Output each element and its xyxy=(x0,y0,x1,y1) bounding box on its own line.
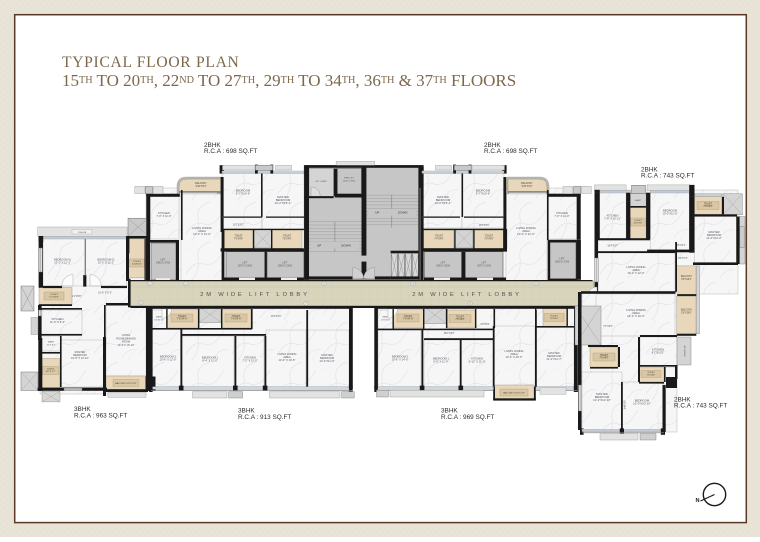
svg-text:4'-6X10'1": 4'-6X10'1" xyxy=(132,264,142,266)
svg-text:TOILET: TOILET xyxy=(404,316,413,318)
svg-text:16'-2" X 10'-0": 16'-2" X 10'-0" xyxy=(627,314,645,318)
svg-text:10'4"X3'7": 10'4"X3'7" xyxy=(607,245,618,248)
svg-text:10'-0" X 21'-0": 10'-0" X 21'-0" xyxy=(517,232,535,236)
svg-text:R.C.A : 698 SQ.FT: R.C.A : 698 SQ.FT xyxy=(204,148,257,155)
svg-text:10'-2"X12'-2": 10'-2"X12'-2" xyxy=(706,236,722,240)
svg-text:11'0"X3'3": 11'0"X3'3" xyxy=(233,224,244,227)
svg-text:7'-6"X4'-6": 7'-6"X4'-6" xyxy=(177,319,188,321)
svg-text:BALCONY: BALCONY xyxy=(681,309,692,312)
svg-text:4'6" X 7'7": 4'6" X 7'7" xyxy=(46,371,56,373)
svg-text:9'10"X3'3": 9'10"X3'3" xyxy=(196,185,207,188)
svg-text:4'6 X 8'4": 4'6 X 8'4" xyxy=(47,345,56,347)
svg-text:2M WIDE LIFT LOBBY: 2M WIDE LIFT LOBBY xyxy=(200,292,310,298)
svg-text:4'3"X3'9": 4'3"X3'9" xyxy=(480,324,489,326)
svg-text:DOWN: DOWN xyxy=(398,211,408,215)
svg-text:TOILET: TOILET xyxy=(133,261,141,263)
svg-text:11'-5" X 8'-4": 11'-5" X 8'-4" xyxy=(50,320,65,324)
svg-text:16'-2" X 12'-0": 16'-2" X 12'-0" xyxy=(628,271,645,275)
svg-text:5'6"X10'2": 5'6"X10'2" xyxy=(681,279,692,281)
svg-text:10'-2"X9'6'-1": 10'-2"X9'6'-1" xyxy=(275,201,292,205)
svg-text:1960 X 2700: 1960 X 2700 xyxy=(555,261,570,264)
svg-text:R.C.A : 963 SQ.FT: R.C.A : 963 SQ.FT xyxy=(74,413,127,420)
svg-text:7'-0" X 11'-0": 7'-0" X 11'-0" xyxy=(554,214,569,218)
svg-text:7'6"X4'6": 7'6"X4'6" xyxy=(647,375,656,377)
svg-text:N: N xyxy=(695,498,699,504)
svg-text:21'1"X6'9": 21'1"X6'9" xyxy=(71,295,82,298)
svg-text:9'10"X3'3": 9'10"X3'3" xyxy=(522,185,533,188)
svg-text:9'-7"X10'-6": 9'-7"X10'-6" xyxy=(476,192,491,196)
svg-text:5'6"X10'6": 5'6"X10'6" xyxy=(681,312,692,314)
svg-text:TOILET: TOILET xyxy=(647,372,655,374)
svg-text:7'6"X4'6": 7'6"X4'6" xyxy=(282,238,291,240)
svg-text:FIRE LIFT: FIRE LIFT xyxy=(344,177,355,179)
svg-text:BALCONY 10'6"X 2'9": BALCONY 10'6"X 2'9" xyxy=(503,392,525,395)
svg-text:TOILET: TOILET xyxy=(178,316,187,318)
svg-text:7'1"X2'5": 7'1"X2'5" xyxy=(603,325,613,328)
svg-text:10'-6" X 14'-0": 10'-6" X 14'-0" xyxy=(392,358,409,362)
svg-text:7'6"X4'6": 7'6"X4'6" xyxy=(599,358,608,360)
svg-text:7'6"X4'6": 7'6"X4'6" xyxy=(550,318,559,320)
svg-text:7'-8" X 10'-11": 7'-8" X 10'-11" xyxy=(604,217,621,221)
svg-text:TOILET: TOILET xyxy=(435,236,444,238)
svg-text:9'-7"X10'-6": 9'-7"X10'-6" xyxy=(236,192,251,196)
svg-text:10'-6" X 19'-5": 10'-6" X 19'-5" xyxy=(506,355,523,359)
svg-text:2870 X 2000: 2870 X 2000 xyxy=(238,265,253,268)
svg-text:11'9"X3'3": 11'9"X3'3" xyxy=(271,315,282,318)
svg-text:10'-2"X14'-7": 10'-2"X14'-7" xyxy=(546,357,562,361)
svg-text:6'-12" X 11'-0": 6'-12" X 11'-0" xyxy=(469,360,486,364)
svg-text:TOILET: TOILET xyxy=(485,236,494,238)
svg-text:UP: UP xyxy=(317,243,321,247)
svg-text:10'-3"X 16'-10": 10'-3"X 16'-10" xyxy=(117,343,134,347)
svg-text:R.C.A : 743 SQ.FT: R.C.A : 743 SQ.FT xyxy=(674,403,727,410)
svg-text:8'1"X10'2": 8'1"X10'2" xyxy=(652,351,665,355)
svg-text:SHAFT: SHAFT xyxy=(635,199,642,202)
svg-text:TOILET: TOILET xyxy=(634,220,642,222)
svg-text:10'-7" X 12'-1": 10'-7" X 12'-1" xyxy=(54,261,70,265)
svg-text:7'-2" X 11'-0": 7'-2" X 11'-0" xyxy=(242,359,257,363)
svg-text:7'4"X4'6": 7'4"X4'6" xyxy=(234,238,243,240)
svg-text:8'5"X3'1": 8'5"X3'1" xyxy=(676,244,686,247)
svg-text:R.C.A : 698 SQ.FT: R.C.A : 698 SQ.FT xyxy=(484,148,537,155)
svg-text:10'-0"X10'-10": 10'-0"X10'-10" xyxy=(633,402,651,406)
svg-text:10'-6" X 12'-10": 10'-6" X 12'-10" xyxy=(71,356,89,360)
svg-text:10'-4" X 19'-5": 10'-4" X 19'-5" xyxy=(279,358,296,362)
svg-text:TYPICAL FLOOR PLAN: TYPICAL FLOOR PLAN xyxy=(62,54,240,71)
svg-text:TOILET: TOILET xyxy=(550,315,558,317)
svg-text:TOILET: TOILET xyxy=(235,236,244,238)
svg-text:2M WIDE LIFT LOBBY: 2M WIDE LIFT LOBBY xyxy=(412,292,522,298)
svg-text:10'-2"X9'6'-1": 10'-2"X9'6'-1" xyxy=(435,201,452,205)
svg-text:2970 X 2100: 2970 X 2100 xyxy=(477,265,491,268)
svg-text:TOILET: TOILET xyxy=(232,316,241,318)
svg-text:8'-4" X 11'-0": 8'-4" X 11'-0" xyxy=(202,359,217,363)
svg-text:WASH: WASH xyxy=(156,315,163,318)
svg-text:6'9"X7'3": 6'9"X7'3" xyxy=(678,257,688,260)
svg-text:TOILET: TOILET xyxy=(283,236,292,238)
svg-text:10'-3" X 12'-1": 10'-3" X 12'-1" xyxy=(98,261,114,265)
svg-text:WASH: WASH xyxy=(48,340,55,343)
svg-text:7'-6"X4'-6": 7'-6"X4'-6" xyxy=(403,319,414,321)
svg-text:UP: UP xyxy=(375,211,379,215)
svg-text:4'4"X4'10": 4'4"X4'10" xyxy=(154,320,164,322)
svg-text:11'6"X3'3": 11'6"X3'3" xyxy=(479,224,490,227)
svg-text:BALCONY: BALCONY xyxy=(681,275,692,278)
svg-text:15'0"X3'3": 15'0"X3'3" xyxy=(444,332,455,335)
svg-text:10'-8" X 9'-2": 10'-8" X 9'-2" xyxy=(98,292,112,295)
svg-text:9'-6" X 11'-0": 9'-6" X 11'-0" xyxy=(433,360,448,364)
svg-text:TOILET: TOILET xyxy=(50,294,58,296)
svg-text:BALCONY 10'3"X 5'3": BALCONY 10'3"X 5'3" xyxy=(115,382,137,385)
svg-text:5'-3"X4'6": 5'-3"X4'6" xyxy=(49,297,59,299)
svg-text:7'-6"X4'-6": 7'-6"X4'-6" xyxy=(231,319,242,321)
svg-text:2900 X 2000: 2900 X 2000 xyxy=(278,265,293,268)
svg-text:10'-2"X12'-10": 10'-2"X12'-10" xyxy=(593,398,611,402)
svg-text:10'-0"X11'-0": 10'-0"X11'-0" xyxy=(662,212,677,216)
svg-text:1980 X 2750: 1980 X 2750 xyxy=(156,262,171,265)
svg-text:DOWN: DOWN xyxy=(341,243,351,247)
svg-text:TOILET: TOILET xyxy=(47,368,55,370)
svg-text:CHAJJA: CHAJJA xyxy=(78,231,87,234)
svg-text:2000 X 1800: 2000 X 1800 xyxy=(343,181,356,183)
svg-text:10'-0" X 21'-0": 10'-0" X 21'-0" xyxy=(193,232,211,236)
svg-text:2900 X 2000: 2900 X 2000 xyxy=(436,265,450,268)
svg-text:LIFT LOBBY: LIFT LOBBY xyxy=(315,181,327,183)
svg-text:7'4"X4'6": 7'4"X4'6" xyxy=(434,238,443,240)
svg-text:TOILET: TOILET xyxy=(704,203,713,205)
svg-text:AC LEDGE: AC LEDGE xyxy=(683,345,686,357)
svg-text:4'6"X7'6": 4'6"X7'6" xyxy=(634,223,643,225)
svg-text:10'-6" X 12'-0": 10'-6" X 12'-0" xyxy=(160,358,177,362)
svg-text:TOILET: TOILET xyxy=(456,316,465,318)
svg-text:7'-0" X 11'-0": 7'-0" X 11'-0" xyxy=(156,214,171,218)
svg-text:TOILET: TOILET xyxy=(600,355,609,357)
svg-text:10'-2"X11'-9": 10'-2"X11'-9" xyxy=(319,359,334,363)
svg-text:7'6"X4'6": 7'6"X4'6" xyxy=(703,206,712,208)
svg-text:7'6"X4'6": 7'6"X4'6" xyxy=(484,238,493,240)
svg-text:R.C.A : 969 SQ.FT: R.C.A : 969 SQ.FT xyxy=(441,414,494,421)
svg-text:4'4"X4'10": 4'4"X4'10" xyxy=(381,320,391,322)
svg-text:R.C.A : 743 SQ.FT: R.C.A : 743 SQ.FT xyxy=(641,173,694,180)
svg-text:R.C.A : 913 SQ.FT: R.C.A : 913 SQ.FT xyxy=(238,414,291,421)
svg-text:7'6"X4'6": 7'6"X4'6" xyxy=(455,319,464,321)
